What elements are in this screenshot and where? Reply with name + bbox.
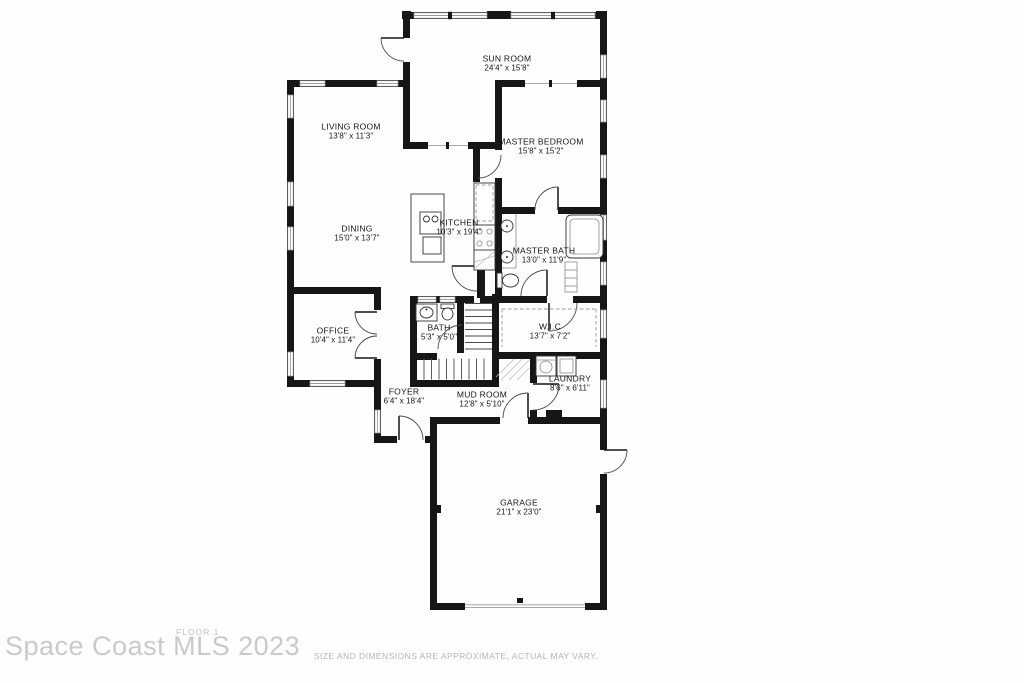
garage-door — [465, 603, 585, 610]
room-dims: 21'1" x 23'0" — [496, 507, 541, 517]
room-dims: 15'0" x 13'7" — [334, 233, 379, 243]
room-dims: 15'8" x 15'2" — [498, 146, 583, 156]
room-name: MUD ROOM — [457, 389, 507, 399]
room-name: OFFICE — [311, 325, 356, 335]
room-dims: 6'4" x 18'4" — [384, 396, 425, 406]
room-label-garage: GARAGE 21'1" x 23'0" — [496, 497, 541, 517]
room-name: GARAGE — [496, 497, 541, 507]
room-name: DINING — [334, 223, 379, 233]
room-name: FOYER — [384, 386, 425, 396]
room-name: LAUNDRY — [549, 373, 591, 383]
room-name: MASTER BATH — [513, 245, 576, 255]
floor-plan-page: SUN ROOM 24'4" x 15'8" LIVING ROOM 13'8"… — [0, 0, 1024, 683]
mud-hall-hatch — [496, 359, 529, 380]
room-label-laundry: LAUNDRY 8'6" x 6'11" — [549, 373, 591, 393]
room-label-office: OFFICE 10'4" x 11'4" — [311, 325, 356, 345]
room-name: KITCHEN — [436, 217, 481, 227]
room-label-dining: DINING 15'0" x 13'7" — [334, 223, 379, 243]
room-label-mud-room: MUD ROOM 12'8" x 5'10" — [457, 389, 507, 409]
room-dims: 13'0" x 11'9" — [513, 255, 576, 265]
room-name: W.I.C — [530, 321, 571, 331]
toilet-icon — [497, 273, 502, 288]
room-label-sun-room: SUN ROOM 24'4" x 15'8" — [483, 53, 532, 73]
room-name: LIVING ROOM — [321, 121, 380, 131]
room-label-wic: W.I.C 13'7" x 7'2" — [530, 321, 571, 341]
room-label-master-bedroom: MASTER BEDROOM 15'8" x 15'2" — [498, 136, 583, 156]
room-dims: 13'7" x 7'2" — [530, 331, 571, 341]
room-dims: 5'3" x 5'0" — [421, 332, 457, 342]
room-dims: 24'4" x 15'8" — [483, 63, 532, 73]
floor-plan-drawing — [0, 0, 1024, 683]
room-dims: 10'4" x 11'4" — [311, 335, 356, 345]
room-dims: 10'3" x 19'4" — [436, 227, 481, 237]
room-label-foyer: FOYER 6'4" x 18'4" — [384, 386, 425, 406]
room-name: MASTER BEDROOM — [498, 136, 583, 146]
room-dims: 8'6" x 6'11" — [549, 383, 591, 393]
room-name: SUN ROOM — [483, 53, 532, 63]
room-dims: 13'8" x 11'3" — [321, 131, 380, 141]
room-label-bath: BATH 5'3" x 5'0" — [421, 322, 457, 342]
dimensions-disclaimer: SIZE AND DIMENSIONS ARE APPROXIMATE, ACT… — [314, 651, 598, 661]
mls-watermark: Space Coast MLS 2023 — [5, 631, 300, 661]
room-label-master-bath: MASTER BATH 13'0" x 11'9" — [513, 245, 576, 265]
room-label-kitchen: KITCHEN 10'3" x 19'4" — [436, 217, 481, 237]
room-dims: 12'8" x 5'10" — [457, 399, 507, 409]
bath-fixtures — [416, 304, 454, 321]
room-label-living-room: LIVING ROOM 13'8" x 11'3" — [321, 121, 380, 141]
room-name: BATH — [421, 322, 457, 332]
